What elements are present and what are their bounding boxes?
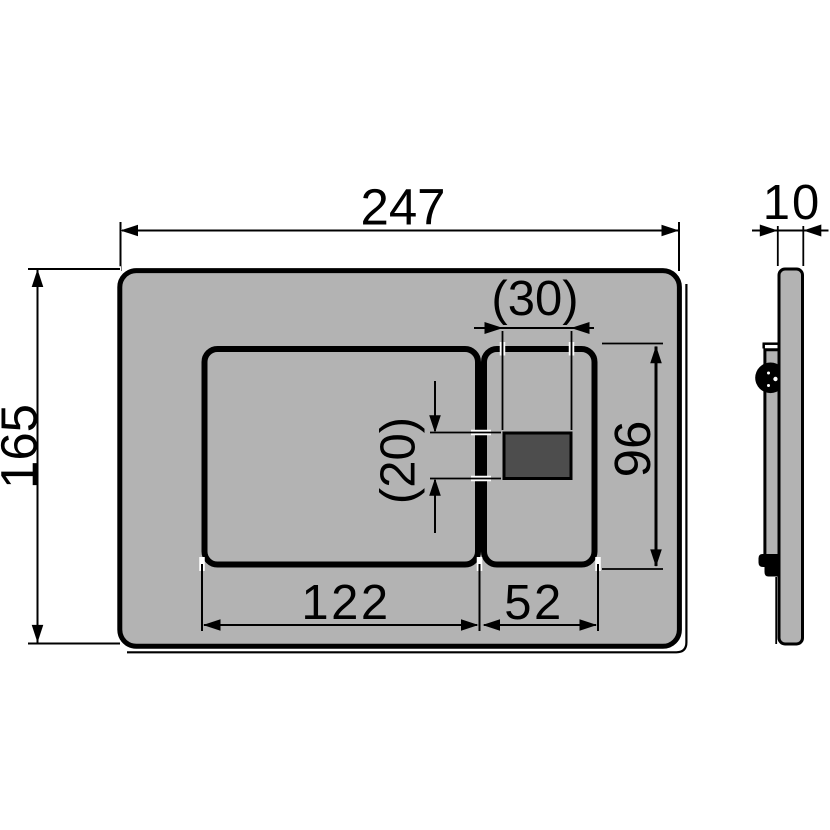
svg-text:122: 122	[301, 576, 390, 630]
svg-text:10: 10	[763, 176, 822, 230]
svg-text:165: 165	[0, 404, 48, 489]
svg-text:(30): (30)	[491, 272, 578, 326]
svg-text:52: 52	[504, 576, 564, 630]
svg-text:(20): (20)	[372, 417, 426, 504]
svg-text:96: 96	[604, 421, 661, 478]
svg-text:247: 247	[360, 179, 445, 236]
